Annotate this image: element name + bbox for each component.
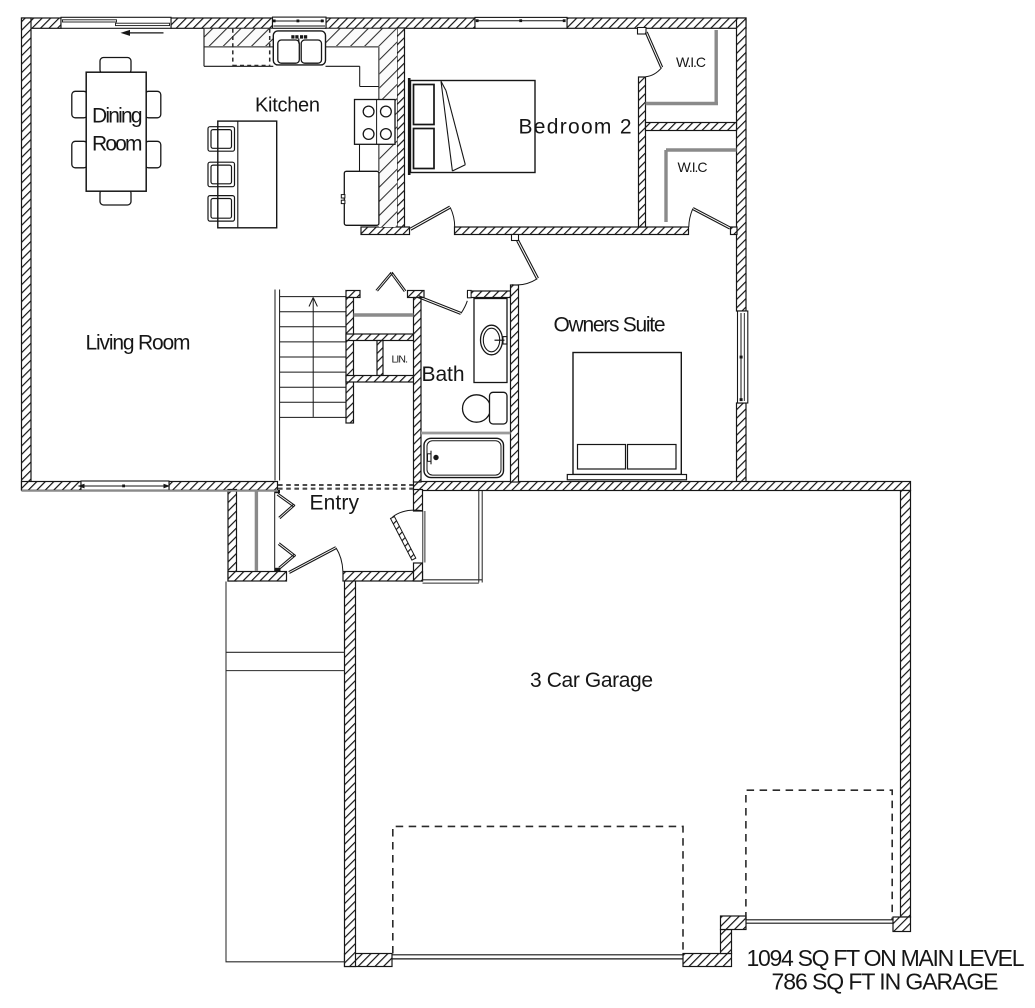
svg-text:Kitchen: Kitchen xyxy=(255,95,320,117)
svg-text:786 SQ FT IN GARAGE: 786 SQ FT IN GARAGE xyxy=(772,969,999,995)
svg-text:Room: Room xyxy=(92,133,143,156)
svg-text:W.I.C: W.I.C xyxy=(676,54,706,70)
svg-text:Living Room: Living Room xyxy=(86,332,191,355)
svg-text:Dining: Dining xyxy=(92,105,143,128)
svg-text:1094 SQ FT ON MAIN LEVEL: 1094 SQ FT ON MAIN LEVEL xyxy=(747,945,1025,971)
svg-text:Owners Suite: Owners Suite xyxy=(554,314,666,337)
svg-text:Bath: Bath xyxy=(422,363,465,386)
svg-text:3 Car Garage: 3 Car Garage xyxy=(530,669,653,692)
svg-text:W.I.C: W.I.C xyxy=(678,159,708,175)
svg-text:Entry: Entry xyxy=(310,492,360,515)
svg-text:Bedroom 2: Bedroom 2 xyxy=(519,116,632,139)
svg-text:LIN.: LIN. xyxy=(392,354,409,366)
